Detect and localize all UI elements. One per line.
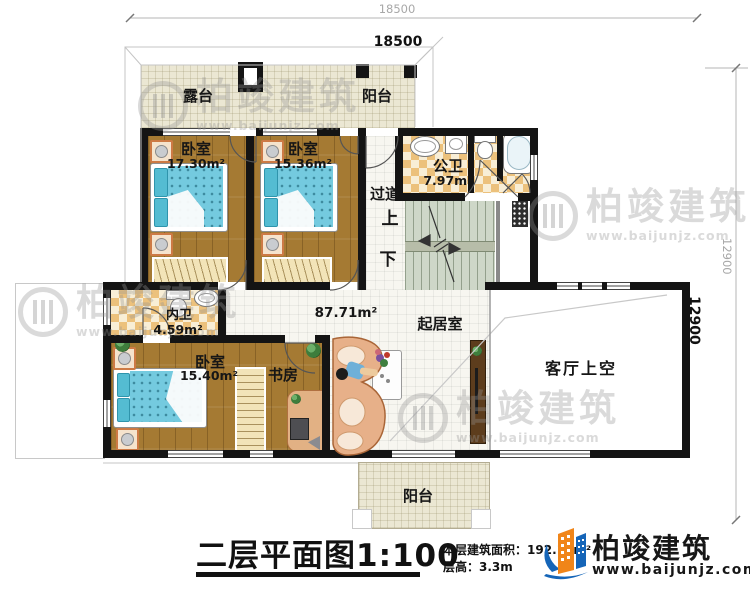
window [250, 450, 273, 458]
label-stairs-down: 下 [380, 251, 397, 270]
watermark-url: www.baijunjz.com [586, 228, 730, 243]
wall-segment [630, 282, 690, 290]
label-public-bath-area: 7.97m² [423, 174, 472, 188]
wall-segment [497, 136, 503, 181]
wall-segment [455, 450, 500, 458]
dim-width-outer: 18500 [379, 3, 416, 16]
title-underline [196, 572, 420, 577]
tv-screen [475, 368, 478, 414]
wardrobe-divider [235, 367, 266, 455]
wall-segment [358, 282, 366, 290]
bed-bedroom2 [260, 163, 338, 232]
label-living: 起居室 [417, 316, 462, 333]
window [163, 128, 230, 136]
bed-cushion [264, 168, 278, 197]
watermark: 柏竣建筑 www.baijunjz.com [528, 188, 750, 244]
floor-height-label: 层高： [443, 560, 479, 574]
dim-width-inner: 18500 [374, 35, 423, 50]
column [356, 64, 369, 78]
nightstand [116, 428, 139, 451]
wall-segment [140, 128, 163, 136]
label-private-bath-area: 4.59m² [153, 323, 202, 337]
window [103, 298, 111, 325]
company-logo-name: 柏竣建筑 [592, 527, 712, 567]
wall-segment [315, 335, 330, 343]
label-stairs-up: 上 [382, 210, 399, 229]
wardrobe-bedroom1 [152, 257, 228, 284]
label-living-area: 87.71m² [315, 306, 378, 321]
wall-segment [103, 335, 143, 343]
wall-segment [322, 343, 330, 458]
company-logo-icon [538, 522, 590, 586]
label-balcony-bottom: 阳台 [403, 488, 433, 505]
window [103, 400, 111, 427]
column [404, 65, 417, 78]
wall-segment [103, 450, 168, 458]
label-bedroom1-area: 17.30m² [167, 157, 225, 171]
label-balcony-top: 阳台 [362, 88, 392, 105]
wardrobe-bedroom2 [262, 257, 332, 284]
floor-area-label: 本层建筑面积： [443, 543, 527, 557]
chimney-flue [244, 68, 257, 85]
plant [291, 394, 301, 404]
toilet-bowl [477, 141, 493, 159]
bed-cushion [154, 168, 168, 197]
watermark-name: 柏竣建筑 [586, 185, 750, 228]
wall-segment [590, 450, 690, 458]
bathtub-basin [507, 136, 531, 170]
wall-segment [358, 128, 366, 136]
wall-segment [103, 282, 111, 298]
label-bedroom2-area: 15.36m² [274, 157, 332, 171]
wall-segment [103, 282, 218, 290]
sink [410, 136, 440, 157]
sliding-door-balcony [392, 450, 455, 458]
window [530, 155, 538, 180]
bed-cushion [154, 198, 168, 227]
radiator [512, 201, 528, 227]
dim-height-inner: 12900 [686, 296, 702, 345]
window [263, 128, 317, 136]
label-study: 书房 [268, 367, 298, 384]
company-logo-url: www.baijunjz.com [592, 562, 750, 578]
bed-cushion [117, 373, 130, 397]
wall-segment [395, 193, 465, 201]
plant [472, 346, 482, 356]
wall-segment [140, 136, 148, 282]
wall-segment [223, 450, 250, 458]
floor-height-value: 3.3m [479, 560, 513, 574]
wall-segment [317, 128, 340, 136]
window [557, 282, 578, 290]
wall-segment [398, 128, 538, 136]
washing-machine [445, 134, 467, 154]
stairs-landing-rail [405, 241, 495, 252]
wall-segment [518, 193, 538, 201]
bed-bedroom1 [150, 163, 228, 232]
wall-segment [358, 136, 366, 282]
coffee-table [372, 350, 402, 400]
lower-roof-slab-left [15, 283, 105, 459]
floor-plan-canvas: 露台 阳台 卧室 17.30m² 卧室 15.36m² 公卫 7.97m² 过道… [0, 0, 750, 596]
sink [194, 289, 219, 307]
wall-segment [485, 282, 557, 290]
dim-height-outer: 12900 [720, 238, 734, 275]
bed-cushion [117, 398, 130, 422]
label-terrace: 露台 [183, 88, 213, 105]
window [500, 450, 590, 458]
window [582, 282, 602, 290]
computer-monitor [290, 418, 309, 440]
floor-height-info: 层高：3.3m [443, 558, 513, 575]
nightstand [261, 233, 284, 256]
wall-segment [273, 450, 392, 458]
wall-segment [530, 136, 538, 155]
balcony-column-left [352, 509, 372, 529]
nightstand [150, 233, 173, 256]
label-corridor: 过道 [370, 186, 400, 203]
balcony-column-right [471, 509, 491, 529]
plant [306, 343, 321, 358]
window [607, 282, 630, 290]
wall-segment [246, 136, 254, 282]
plan-title: 二层平面图1:100 [196, 530, 460, 575]
bed-cushion [264, 198, 278, 227]
label-void: 客厅上空 [545, 360, 617, 378]
wall-segment [256, 128, 263, 136]
wall-segment [246, 282, 330, 290]
window [168, 450, 223, 458]
stair-half-wall [496, 201, 500, 290]
label-bedroom3-area: 15.40m² [180, 369, 238, 383]
